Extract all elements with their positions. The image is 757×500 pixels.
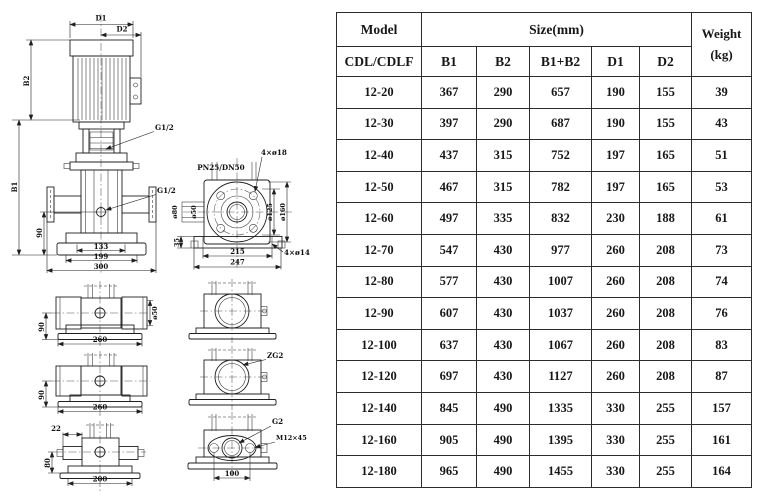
header-model: Model bbox=[337, 13, 422, 47]
dim-d1-label: D1 bbox=[96, 14, 107, 23]
table-body: 12-203672906571901553912-303972906871901… bbox=[337, 77, 752, 488]
table-cell: 1127 bbox=[530, 361, 592, 393]
table-row: 12-2036729065719015539 bbox=[337, 77, 752, 109]
table-cell: 197 bbox=[592, 171, 640, 203]
table-cell: 687 bbox=[530, 108, 592, 140]
dim-300-label: 300 bbox=[94, 262, 109, 271]
dim-100-label: 100 bbox=[225, 469, 240, 478]
table-cell: 87 bbox=[692, 361, 752, 393]
table-cell: 1455 bbox=[530, 456, 592, 488]
dia-160-label: ø160 bbox=[279, 203, 287, 221]
table-cell: 607 bbox=[422, 298, 477, 330]
table-cell: 12-100 bbox=[337, 329, 422, 361]
table-cell: 905 bbox=[422, 424, 477, 456]
header-weight: Weight (kg) bbox=[692, 13, 752, 77]
table-cell: 290 bbox=[477, 77, 530, 109]
table-cell: 330 bbox=[592, 424, 640, 456]
table-cell: 208 bbox=[640, 329, 692, 361]
table-cell: 12-80 bbox=[337, 266, 422, 298]
sv1-dim-260-label: 260 bbox=[93, 335, 108, 344]
table-cell: 12-140 bbox=[337, 393, 422, 425]
table-cell: 430 bbox=[477, 235, 530, 267]
dia-125-label: ø125 bbox=[266, 203, 274, 221]
table-row: 12-5046731578219716553 bbox=[337, 171, 752, 203]
dim-35-label: 35 bbox=[173, 238, 181, 248]
table-cell: 490 bbox=[477, 456, 530, 488]
dim-247-label: 247 bbox=[230, 258, 245, 267]
table-cell: 155 bbox=[640, 77, 692, 109]
dim-b2-label: B2 bbox=[22, 75, 31, 86]
table-cell: 208 bbox=[640, 266, 692, 298]
table-cell: 330 bbox=[592, 456, 640, 488]
table-cell: 430 bbox=[477, 298, 530, 330]
table-cell: 260 bbox=[592, 298, 640, 330]
table-cell: 547 bbox=[422, 235, 477, 267]
table-cell: 965 bbox=[422, 456, 477, 488]
terminal-box bbox=[130, 78, 141, 104]
g2-label: G2 bbox=[272, 417, 283, 426]
table-cell: 83 bbox=[692, 329, 752, 361]
dim-b1-label: B1 bbox=[10, 181, 19, 192]
zg2-label: ZG2 bbox=[267, 351, 283, 360]
header-series: CDL/CDLF bbox=[337, 47, 422, 77]
motor-fins bbox=[78, 58, 126, 120]
table-cell: 430 bbox=[477, 361, 530, 393]
table-cell: 255 bbox=[640, 456, 692, 488]
header-col-d2: D2 bbox=[640, 47, 692, 77]
table-cell: 12-50 bbox=[337, 171, 422, 203]
table-cell: 188 bbox=[640, 203, 692, 235]
table-cell: 335 bbox=[477, 203, 530, 235]
table-cell: 165 bbox=[640, 140, 692, 172]
table-row: 12-3039729068719015543 bbox=[337, 108, 752, 140]
table-cell: 467 bbox=[422, 171, 477, 203]
table-cell: 12-90 bbox=[337, 298, 422, 330]
table-cell: 260 bbox=[592, 361, 640, 393]
dim-199-label: 199 bbox=[94, 252, 109, 261]
catalog-page: D1 D2 B2 B1 90 G1/2 G1/2 133 199 300 bbox=[0, 0, 757, 500]
table-cell: 73 bbox=[692, 235, 752, 267]
table-cell: 255 bbox=[640, 393, 692, 425]
table-cell: 39 bbox=[692, 77, 752, 109]
table-cell: 330 bbox=[592, 393, 640, 425]
table-row: 12-4043731575219716551 bbox=[337, 140, 752, 172]
g12-mid-label: G1/2 bbox=[157, 186, 176, 195]
table-cell: 155 bbox=[640, 108, 692, 140]
table-cell: 165 bbox=[640, 171, 692, 203]
table-cell: 208 bbox=[640, 235, 692, 267]
motor-body bbox=[73, 56, 130, 122]
flange-top-view: PN25/DN50 ø80 ø50 ø125 ø160 4×ø18 bbox=[171, 148, 310, 270]
table-cell: 12-180 bbox=[337, 456, 422, 488]
dia-80-label: ø80 bbox=[171, 205, 179, 219]
dimension-table: Model Size(mm) Weight (kg) CDL/CDLF B1 B… bbox=[336, 12, 752, 488]
table-cell: 230 bbox=[592, 203, 640, 235]
table-cell: 161 bbox=[692, 424, 752, 456]
table-row: 12-7054743097726020873 bbox=[337, 235, 752, 267]
dim-215-label: 215 bbox=[230, 247, 245, 256]
sv3-dim-200-label: 200 bbox=[93, 475, 108, 484]
bolt-holes-top-label: 4×ø18 bbox=[261, 148, 287, 157]
table-cell: 12-40 bbox=[337, 140, 422, 172]
table-cell: 397 bbox=[422, 108, 477, 140]
table-cell: 1067 bbox=[530, 329, 592, 361]
header-col-b2: B2 bbox=[477, 47, 530, 77]
table-cell: 76 bbox=[692, 298, 752, 330]
table-cell: 1037 bbox=[530, 298, 592, 330]
table-row: 12-100637430106726020883 bbox=[337, 329, 752, 361]
table-row: 12-90607430103726020876 bbox=[337, 298, 752, 330]
table-cell: 260 bbox=[592, 266, 640, 298]
sv2-dim-260-label: 260 bbox=[93, 403, 108, 412]
dim-d2-label: D2 bbox=[117, 25, 128, 34]
table-cell: 1395 bbox=[530, 424, 592, 456]
table-cell: 208 bbox=[640, 361, 692, 393]
sv2-dim-90-label: 90 bbox=[37, 390, 46, 400]
table-cell: 430 bbox=[477, 266, 530, 298]
table-row: 12-1609054901395330255161 bbox=[337, 424, 752, 456]
table-cell: 12-160 bbox=[337, 424, 422, 456]
dia-50-label: ø50 bbox=[190, 205, 198, 219]
table-cell: 197 bbox=[592, 140, 640, 172]
table-cell: 697 bbox=[422, 361, 477, 393]
flange-spec-label: PN25/DN50 bbox=[197, 163, 244, 172]
dim-90-label: 90 bbox=[35, 228, 44, 238]
table-cell: 497 bbox=[422, 203, 477, 235]
table-cell: 260 bbox=[592, 329, 640, 361]
table-row: 12-80577430100726020874 bbox=[337, 266, 752, 298]
port-view-3: G2 M12×45 100 bbox=[188, 412, 307, 481]
header-col-b1: B1 bbox=[422, 47, 477, 77]
table-cell: 657 bbox=[530, 77, 592, 109]
table-cell: 255 bbox=[640, 424, 692, 456]
sv3-dim-22-label: 22 bbox=[51, 424, 61, 433]
table-cell: 490 bbox=[477, 424, 530, 456]
table-cell: 12-70 bbox=[337, 235, 422, 267]
main-elevation-view: D1 D2 B2 B1 90 G1/2 G1/2 133 199 300 bbox=[10, 14, 176, 275]
table-cell: 1335 bbox=[530, 393, 592, 425]
table-cell: 157 bbox=[692, 393, 752, 425]
table-cell: 782 bbox=[530, 171, 592, 203]
table-row: 12-1809654901455330255164 bbox=[337, 456, 752, 488]
table-cell: 190 bbox=[592, 108, 640, 140]
table-cell: 208 bbox=[640, 298, 692, 330]
table-cell: 315 bbox=[477, 140, 530, 172]
header-col-b1b2: B1+B2 bbox=[530, 47, 592, 77]
port-view-2: ZG2 bbox=[189, 346, 283, 410]
table-cell: 845 bbox=[422, 393, 477, 425]
bolt-holes-bottom-label: 4×ø14 bbox=[284, 248, 310, 257]
table-cell: 12-20 bbox=[337, 77, 422, 109]
port-view-1 bbox=[189, 279, 276, 343]
m12x45-label: M12×45 bbox=[276, 434, 307, 442]
header-weight-line1: Weight bbox=[692, 24, 751, 44]
header-size: Size(mm) bbox=[422, 13, 692, 47]
table-cell: 490 bbox=[477, 393, 530, 425]
table-cell: 74 bbox=[692, 266, 752, 298]
table-cell: 260 bbox=[592, 235, 640, 267]
table-cell: 164 bbox=[692, 456, 752, 488]
g12-top-label: G1/2 bbox=[155, 123, 174, 132]
header-weight-line2: (kg) bbox=[692, 45, 751, 65]
table-cell: 290 bbox=[477, 108, 530, 140]
table-cell: 430 bbox=[477, 329, 530, 361]
sv1-dim-90-label: 90 bbox=[37, 322, 46, 332]
side-view-2: 90 260 bbox=[37, 351, 150, 416]
sv3-dim-80-label: 80 bbox=[43, 458, 52, 468]
table-cell: 190 bbox=[592, 77, 640, 109]
sv1-dia-50-label: ø50 bbox=[151, 306, 159, 320]
table-cell: 12-30 bbox=[337, 108, 422, 140]
side-view-1: ø50 90 260 bbox=[37, 281, 159, 347]
pump-technical-drawing: D1 D2 B2 B1 90 G1/2 G1/2 133 199 300 bbox=[0, 0, 335, 500]
table-row: 12-120697430112726020887 bbox=[337, 361, 752, 393]
table-cell: 637 bbox=[422, 329, 477, 361]
table-cell: 832 bbox=[530, 203, 592, 235]
table-cell: 367 bbox=[422, 77, 477, 109]
table-cell: 752 bbox=[530, 140, 592, 172]
table-row: 12-6049733583223018861 bbox=[337, 203, 752, 235]
table-header-row-1: Model Size(mm) Weight (kg) bbox=[337, 13, 752, 47]
motor-cap bbox=[70, 40, 133, 56]
table-row: 12-1408454901335330255157 bbox=[337, 393, 752, 425]
header-col-d1: D1 bbox=[592, 47, 640, 77]
table-cell: 61 bbox=[692, 203, 752, 235]
table-cell: 12-120 bbox=[337, 361, 422, 393]
table-cell: 977 bbox=[530, 235, 592, 267]
table-cell: 43 bbox=[692, 108, 752, 140]
table-cell: 315 bbox=[477, 171, 530, 203]
table-cell: 437 bbox=[422, 140, 477, 172]
table-cell: 1007 bbox=[530, 266, 592, 298]
table-cell: 577 bbox=[422, 266, 477, 298]
table-header-row-2: CDL/CDLF B1 B2 B1+B2 D1 D2 bbox=[337, 47, 752, 77]
side-view-3: 22 80 200 bbox=[43, 421, 146, 491]
table-cell: 51 bbox=[692, 140, 752, 172]
table-cell: 53 bbox=[692, 171, 752, 203]
table-cell: 12-60 bbox=[337, 203, 422, 235]
dim-133-label: 133 bbox=[94, 242, 109, 251]
